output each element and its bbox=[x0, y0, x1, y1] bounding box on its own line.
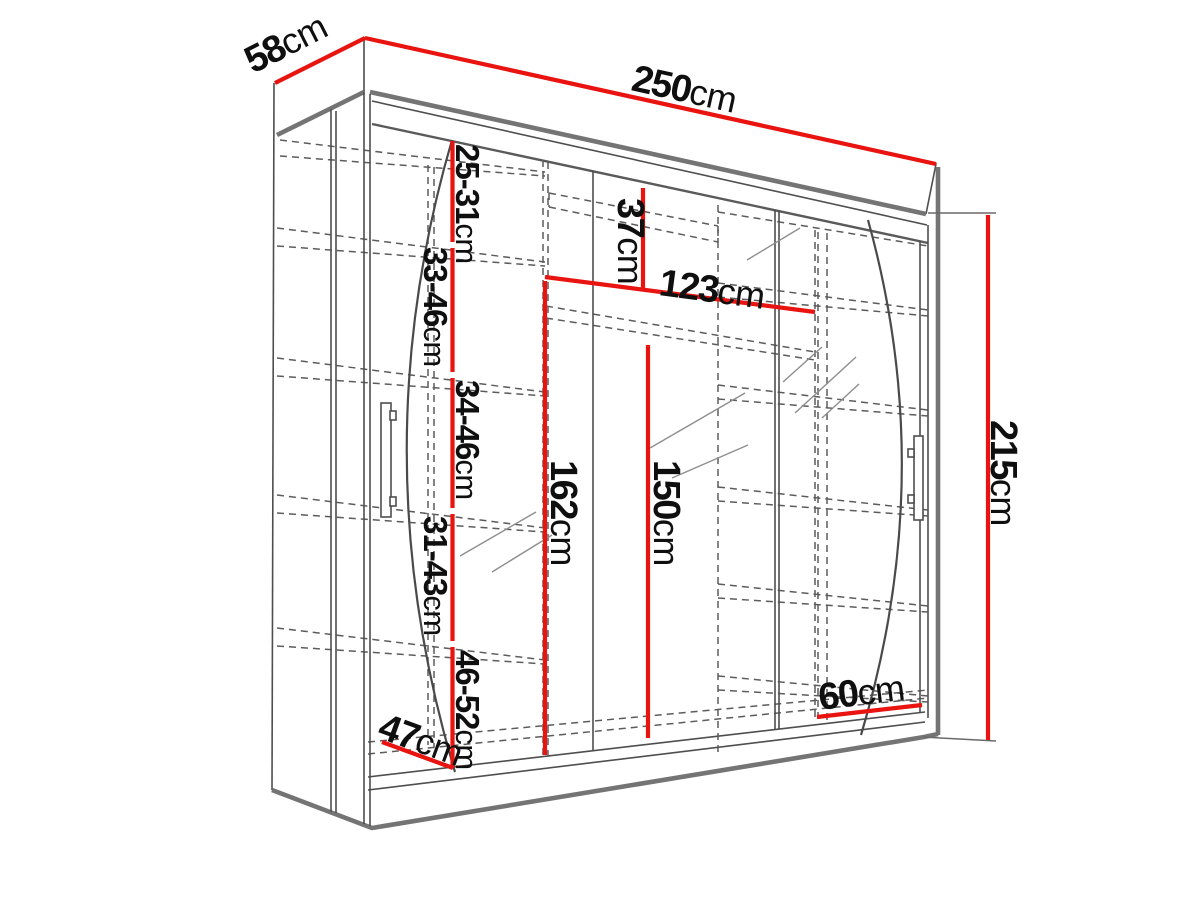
height-label: 215cm bbox=[982, 420, 1024, 526]
left-door-handle bbox=[381, 403, 396, 517]
interior-hidden-lines bbox=[277, 140, 928, 762]
left-door-mirror-arc bbox=[407, 140, 455, 772]
top-face-edges bbox=[275, 38, 936, 214]
hang-right-label: 150cm bbox=[645, 460, 687, 566]
shelf-gap-3-label: 34-46cm bbox=[449, 380, 486, 500]
bottom-width-label: 60cm bbox=[816, 667, 907, 719]
top-niche-label: 37cm bbox=[609, 198, 651, 284]
left-side-edge bbox=[272, 83, 274, 790]
right-handle-tab-bottom bbox=[908, 495, 914, 503]
strong-edges bbox=[272, 92, 938, 828]
inner-width-label: 123cm bbox=[657, 262, 767, 317]
left-shelves-dashed bbox=[277, 140, 545, 664]
shelf-gap-1-label: 25-31cm bbox=[449, 144, 486, 264]
right-handle-bar bbox=[914, 436, 923, 520]
depth-label: 58cm bbox=[238, 5, 334, 82]
shelf-gap-4-label: 31-43cm bbox=[417, 516, 454, 636]
left-handle-tab-bottom bbox=[390, 497, 396, 506]
right-door-mirror-arc bbox=[861, 220, 902, 735]
dimension-labels: 58cm 250cm 215cm 37cm 123cm 162cm 150cm … bbox=[238, 5, 1024, 775]
width-label: 250cm bbox=[628, 58, 740, 122]
wardrobe-dimension-diagram: 58cm 250cm 215cm 37cm 123cm 162cm 150cm … bbox=[0, 0, 1200, 900]
shelf-gap-2-label: 33-46cm bbox=[417, 247, 454, 367]
left-handle-tab-top bbox=[390, 411, 396, 420]
right-handle-tab-top bbox=[908, 449, 914, 457]
diagram-canvas: 58cm 250cm 215cm 37cm 123cm 162cm 150cm … bbox=[0, 0, 1200, 900]
hang-left-label: 162cm bbox=[542, 460, 584, 566]
